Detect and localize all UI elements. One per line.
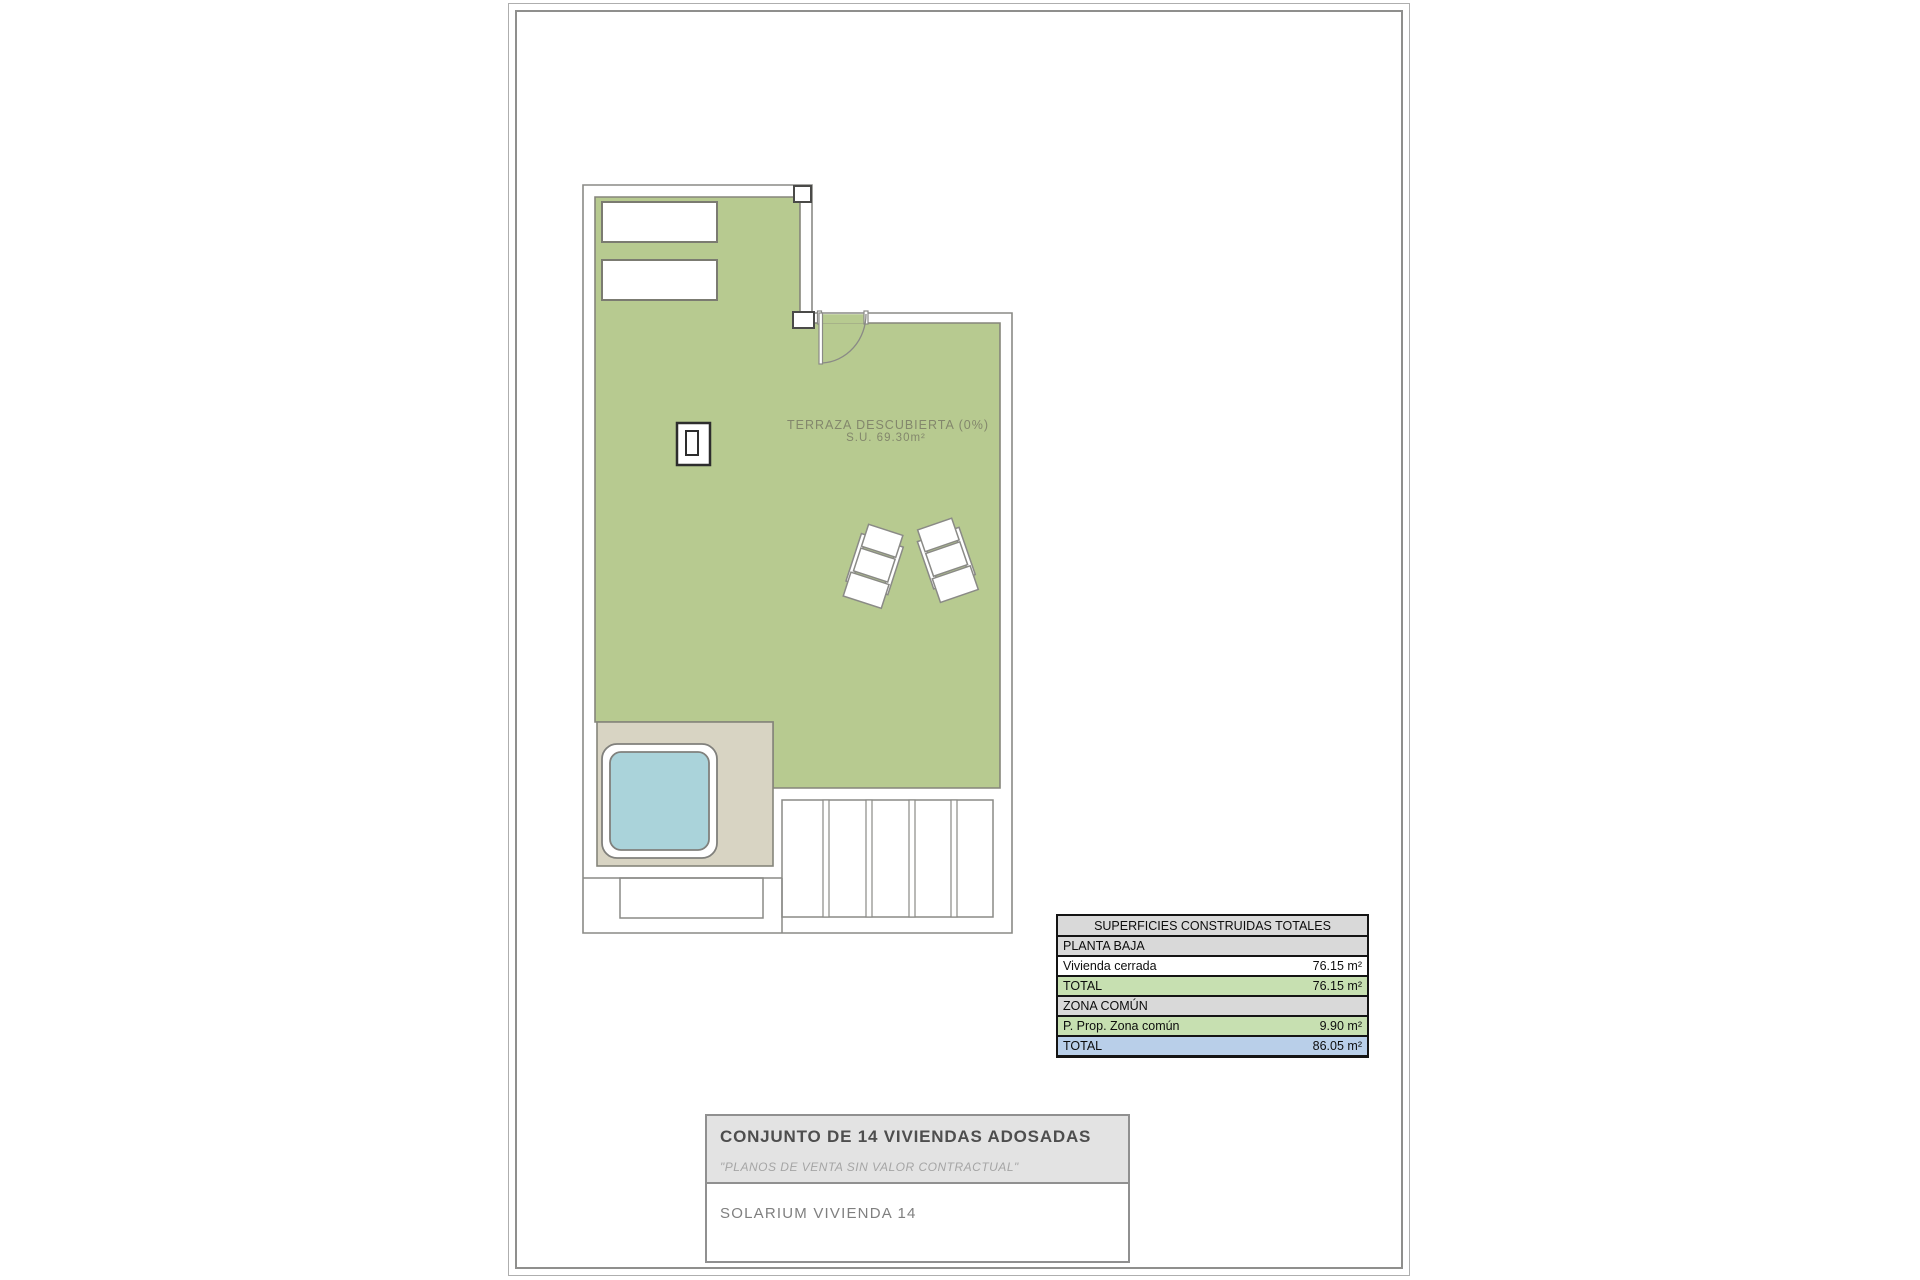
door-leaf [819, 313, 823, 364]
row-label: TOTAL [1063, 979, 1102, 993]
title-block-header: CONJUNTO DE 14 VIVIENDAS ADOSADAS "PLANO… [707, 1116, 1128, 1184]
areas-table-title-text: SUPERFICIES CONSTRUIDAS TOTALES [1094, 919, 1331, 933]
row-label: TOTAL [1063, 1039, 1102, 1053]
row-label: PLANTA BAJA [1063, 939, 1145, 953]
stair-riser [866, 800, 872, 917]
table-row-total-planta: TOTAL 76.15 m² [1058, 975, 1367, 995]
row-value: 86.05 m² [1313, 1039, 1362, 1053]
table-row-planta-baja: PLANTA BAJA [1058, 935, 1367, 955]
vent-box-2 [602, 260, 717, 300]
pool-water [610, 752, 709, 850]
stairs-outline [782, 800, 993, 917]
disclaimer-text: "PLANOS DE VENTA SIN VALOR CONTRACTUAL" [720, 1160, 1128, 1174]
table-row-zona-comun: ZONA COMÚN [1058, 995, 1367, 1015]
row-label: P. Prop. Zona común [1063, 1019, 1180, 1033]
column-top [794, 186, 811, 202]
stairs [782, 800, 993, 917]
terrace-area-label: S.U. 69.30m² [846, 432, 926, 444]
drawing-page: TERRAZA DESCUBIERTA (0%) S.U. 69.30m² SU… [0, 0, 1920, 1280]
row-label: Vivienda cerrada [1063, 959, 1157, 973]
row-value: 76.15 m² [1313, 959, 1362, 973]
sheet-name: SOLARIUM VIVIENDA 14 [720, 1205, 1128, 1222]
doorway-opening [819, 314, 866, 323]
stair-riser [951, 800, 957, 917]
terrace-label: TERRAZA DESCUBIERTA (0%) [787, 418, 989, 432]
table-row-prop-zona-comun: P. Prop. Zona común 9.90 m² [1058, 1015, 1367, 1035]
areas-table: SUPERFICIES CONSTRUIDAS TOTALES PLANTA B… [1056, 914, 1369, 1058]
table-row-vivienda-cerrada: Vivienda cerrada 76.15 m² [1058, 955, 1367, 975]
vent-box-1 [602, 202, 717, 242]
landing-step [620, 878, 763, 918]
row-label: ZONA COMÚN [1063, 999, 1148, 1013]
stair-riser [823, 800, 829, 917]
row-value: 76.15 m² [1313, 979, 1362, 993]
row-value: 9.90 m² [1320, 1019, 1362, 1033]
project-title: CONJUNTO DE 14 VIVIENDAS ADOSADAS [720, 1127, 1128, 1147]
column-mid [793, 312, 814, 328]
table-row-total-general: TOTAL 86.05 m² [1058, 1035, 1367, 1055]
floor-plan: TERRAZA DESCUBIERTA (0%) S.U. 69.30m² [0, 0, 1920, 1280]
stair-riser [909, 800, 915, 917]
chimney-inner [686, 431, 698, 455]
title-block-body: SOLARIUM VIVIENDA 14 [707, 1184, 1128, 1261]
areas-table-title: SUPERFICIES CONSTRUIDAS TOTALES [1058, 916, 1367, 935]
title-block: CONJUNTO DE 14 VIVIENDAS ADOSADAS "PLANO… [705, 1114, 1130, 1263]
